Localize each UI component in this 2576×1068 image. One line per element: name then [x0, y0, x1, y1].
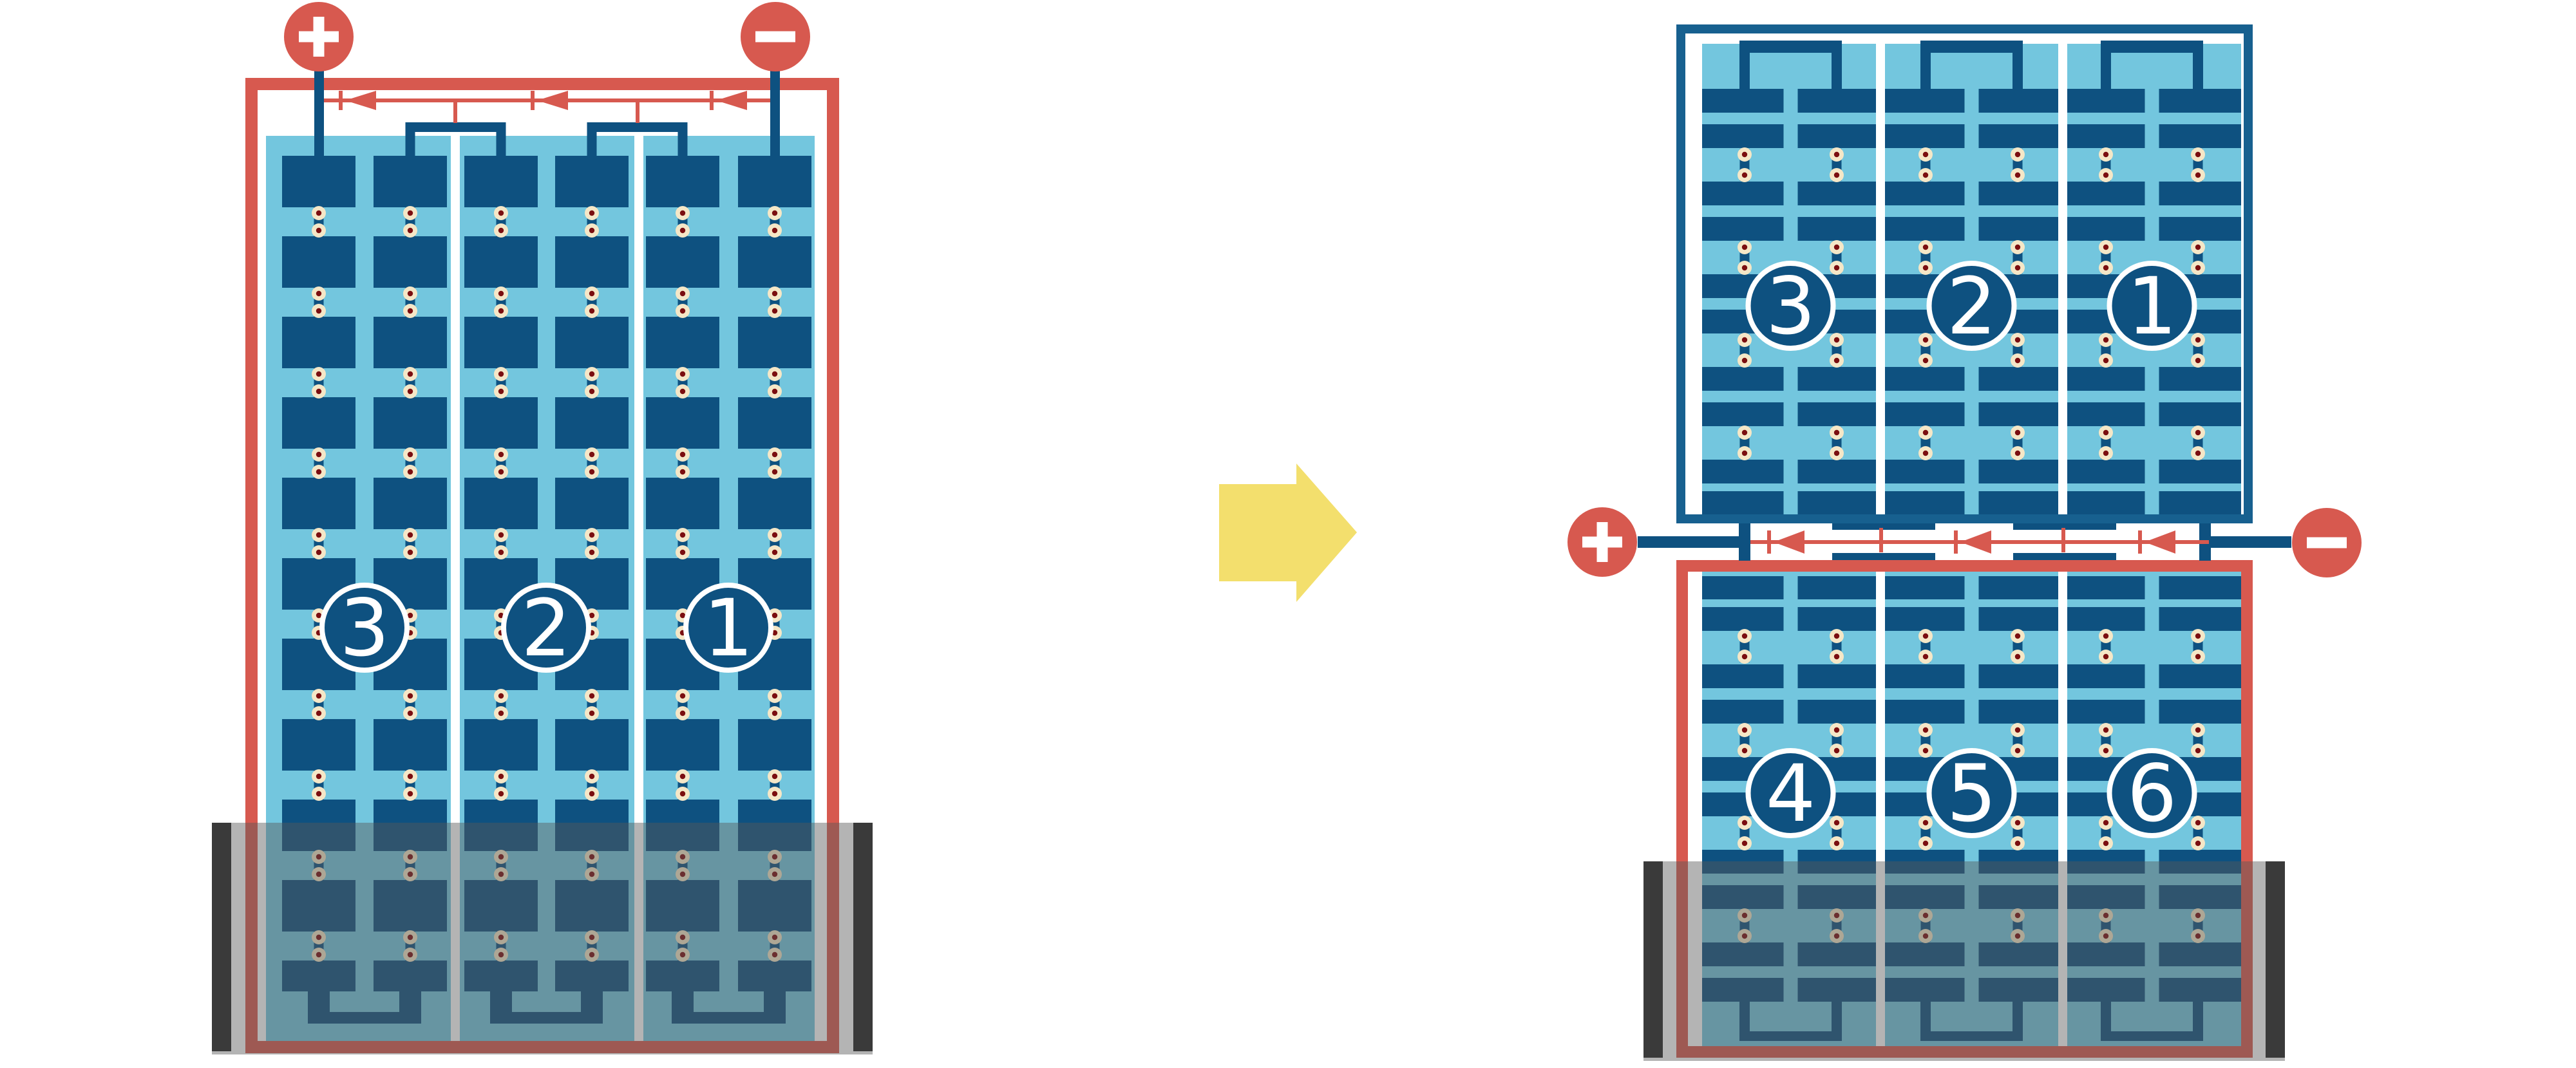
bead-core — [1742, 820, 1747, 825]
bead-core — [772, 291, 777, 296]
cell-number-label: 4 — [1766, 748, 1816, 839]
plate — [282, 478, 355, 529]
plate — [646, 478, 719, 529]
bead-core — [498, 389, 504, 394]
bead-core — [1923, 245, 1928, 250]
plate-bar — [1885, 491, 1965, 514]
bead-core — [772, 211, 777, 216]
plate-bar — [1798, 217, 1877, 241]
plus-glyph-vertical — [314, 17, 325, 57]
plate-bar — [1702, 664, 1784, 688]
plate-bar — [2159, 124, 2242, 148]
plate-bar — [2159, 217, 2242, 241]
plate-bar — [1979, 700, 2059, 724]
bead-core — [1923, 841, 1928, 846]
plate-bar — [1798, 664, 1877, 688]
plate — [282, 397, 355, 449]
bead-core — [772, 774, 777, 779]
bead-core — [2103, 358, 2108, 363]
bead-core — [2015, 245, 2020, 250]
bead-core — [589, 550, 594, 555]
bead-core — [2195, 748, 2201, 753]
plate-bar — [1885, 700, 1965, 724]
u-connector-leg — [1920, 53, 1931, 89]
bead-core — [2103, 654, 2108, 659]
bead-core — [316, 791, 321, 796]
bead-core — [2015, 841, 2020, 846]
plate-bar — [1979, 664, 2059, 688]
bead-core — [1834, 152, 1839, 157]
bead-core — [408, 711, 413, 716]
bead-core — [1923, 748, 1928, 753]
bead-core — [1834, 358, 1839, 363]
bead-core — [589, 532, 594, 538]
plate-bar — [2067, 576, 2145, 599]
bead-core — [498, 693, 504, 698]
bead-core — [1742, 337, 1747, 342]
bead-core — [2015, 654, 2020, 659]
bead-core — [680, 550, 685, 555]
bead-core — [589, 211, 594, 216]
bead-core — [772, 550, 777, 555]
diode-bar — [339, 91, 343, 110]
current-tap — [2061, 528, 2065, 552]
plate — [374, 397, 447, 449]
current-tap — [1879, 528, 1883, 552]
plate-bar — [1702, 217, 1784, 241]
bead-core — [408, 791, 413, 796]
plate-bar — [1885, 217, 1965, 241]
plate — [282, 156, 355, 207]
bead-core — [1834, 654, 1839, 659]
plate-bar — [1702, 124, 1784, 148]
negative-stem — [770, 64, 780, 157]
bead-core — [2103, 820, 2108, 825]
bead-core — [589, 469, 594, 474]
plate-bar — [2067, 182, 2145, 205]
plate-bar — [1979, 460, 2059, 483]
intercell-bridge — [406, 122, 506, 132]
plate-bar — [1798, 700, 1877, 724]
bead-core — [680, 774, 685, 779]
bead-core — [1742, 727, 1747, 733]
bead-core — [1834, 633, 1839, 639]
plate-bar — [2159, 607, 2242, 631]
plate-bar — [2159, 700, 2242, 724]
cell-number-label: 2 — [1947, 261, 1997, 352]
bead-core — [498, 791, 504, 796]
bead-core — [498, 469, 504, 474]
cell-number-label: 1 — [2127, 261, 2177, 352]
bead-core — [2103, 430, 2108, 435]
bead-core — [772, 452, 777, 457]
plate-bar — [2067, 491, 2145, 514]
plate-bar — [2159, 402, 2242, 426]
plate-bar — [1798, 89, 1877, 113]
plate-bar — [1702, 607, 1784, 631]
holder-bar — [2266, 861, 2285, 1058]
plate-bar — [1798, 491, 1877, 514]
bead-core — [1923, 633, 1928, 639]
plate — [374, 317, 447, 368]
u-connector-bar — [1739, 41, 1842, 53]
diode-bar — [1954, 530, 1958, 554]
holder-bar — [853, 823, 873, 1051]
negative-stem — [2211, 536, 2291, 548]
intercell-tab-lower — [2013, 553, 2116, 560]
plate-bar — [2067, 367, 2145, 391]
bead-core — [498, 532, 504, 538]
bead-core — [680, 228, 685, 233]
plate-bar — [2159, 491, 2242, 514]
bead-core — [408, 371, 413, 377]
diode-bar — [531, 91, 535, 110]
bead-core — [408, 693, 413, 698]
plate-bar — [1979, 89, 2059, 113]
bead-core — [316, 452, 321, 457]
plate-bar — [1702, 491, 1784, 514]
right-bottom-battery: 456 — [1643, 566, 2285, 1061]
plate — [646, 317, 719, 368]
bead-core — [1742, 654, 1747, 659]
intercell-bridge-leg — [497, 132, 506, 158]
plate — [464, 719, 538, 771]
bead-core — [2195, 265, 2201, 270]
intercell-tab-upper — [1832, 523, 1935, 530]
bead-core — [680, 711, 685, 716]
bead-core — [498, 211, 504, 216]
plus-glyph-vertical — [1597, 522, 1608, 562]
bead-core — [2015, 727, 2020, 733]
bead-core — [2015, 451, 2020, 456]
bead-core — [772, 228, 777, 233]
bead-core — [1834, 173, 1839, 178]
plate — [555, 236, 629, 288]
u-connector-bar — [1920, 41, 2023, 53]
bead-core — [2195, 173, 2201, 178]
bead-core — [316, 774, 321, 779]
plate — [555, 478, 629, 529]
plate-bar — [1885, 89, 1965, 113]
bead-core — [680, 389, 685, 394]
bead-core — [1742, 358, 1747, 363]
plate-bar — [1979, 607, 2059, 631]
plate — [282, 719, 355, 771]
plate-bar — [1979, 217, 2059, 241]
diode-bar — [2138, 530, 2142, 554]
plate-bar — [1979, 124, 2059, 148]
bead-core — [1742, 748, 1747, 753]
bead-core — [1923, 451, 1928, 456]
intercell-bridge-leg — [678, 132, 688, 158]
plate-bar — [1885, 367, 1965, 391]
bead-core — [1923, 337, 1928, 342]
plate — [282, 317, 355, 368]
plate-bar — [1702, 402, 1784, 426]
bead-core — [1742, 841, 1747, 846]
bead-core — [2015, 358, 2020, 363]
diode-arrow-left — [345, 91, 376, 110]
bead-core — [408, 532, 413, 538]
bead-core — [498, 291, 504, 296]
plate-bar — [1702, 576, 1784, 599]
bead-core — [408, 774, 413, 779]
minus-glyph — [2307, 538, 2347, 548]
plate-bar — [2159, 182, 2242, 205]
u-connector-leg — [2012, 53, 2023, 89]
positive-stem — [314, 64, 324, 157]
plate — [738, 236, 811, 288]
bead-core — [1834, 820, 1839, 825]
plate-bar — [1979, 367, 2059, 391]
liquid-level-overlay — [212, 823, 873, 1054]
bead-core — [1834, 430, 1839, 435]
plate-bar — [2067, 700, 2145, 724]
bead-core — [2015, 173, 2020, 178]
cell-number-label: 6 — [2127, 748, 2177, 839]
battery-diagram: 321 321 456 — [0, 0, 2576, 1068]
current-tap — [453, 102, 457, 123]
bead-core — [2195, 245, 2201, 250]
plate-bar — [2159, 367, 2242, 391]
bead-core — [589, 693, 594, 698]
bead-core — [2103, 337, 2108, 342]
bead-core — [2015, 265, 2020, 270]
bead-core — [772, 711, 777, 716]
bead-core — [408, 389, 413, 394]
bead-core — [1742, 265, 1747, 270]
cell-number-label: 1 — [703, 583, 753, 674]
plate-bar — [2159, 576, 2242, 599]
bead-core — [1834, 841, 1839, 846]
plate-bar — [1702, 367, 1784, 391]
bead-core — [408, 469, 413, 474]
bead-core — [680, 693, 685, 698]
bead-core — [1742, 451, 1747, 456]
bead-core — [1923, 820, 1928, 825]
transform-arrow — [1219, 464, 1357, 602]
cell-number-label: 5 — [1947, 748, 1997, 839]
plate-bar — [1979, 182, 2059, 205]
plate — [282, 236, 355, 288]
bead-core — [772, 791, 777, 796]
bead-core — [2195, 841, 2201, 846]
bead-core — [589, 711, 594, 716]
plate-bar — [1885, 664, 1965, 688]
bead-core — [2195, 820, 2201, 825]
diode-arrow-left — [716, 91, 747, 110]
u-connector-leg — [1832, 53, 1842, 89]
plate-bar — [2067, 89, 2145, 113]
minus-glyph — [755, 32, 795, 42]
plate-bar — [1798, 367, 1877, 391]
plate-bar — [2067, 607, 2145, 631]
bead-core — [2103, 727, 2108, 733]
bead-core — [1834, 451, 1839, 456]
bead-core — [1923, 654, 1928, 659]
current-tap — [636, 102, 639, 123]
bead-core — [1834, 245, 1839, 250]
plate-bar — [1885, 182, 1965, 205]
cell-number-label: 3 — [339, 583, 390, 674]
bead-core — [2103, 265, 2108, 270]
plate — [374, 156, 447, 207]
bead-core — [498, 228, 504, 233]
bead-core — [2195, 727, 2201, 733]
bead-core — [2015, 337, 2020, 342]
plate — [464, 156, 538, 207]
plate-bar — [1885, 576, 1965, 599]
bead-core — [680, 371, 685, 377]
bead-core — [1742, 245, 1747, 250]
cell-number-label: 2 — [521, 583, 571, 674]
plate-bar — [1702, 460, 1784, 483]
bead-core — [408, 211, 413, 216]
diode-arrow-left — [2145, 530, 2175, 554]
bead-core — [2103, 152, 2108, 157]
bead-core — [2015, 633, 2020, 639]
plate-bar — [1798, 576, 1877, 599]
intercell-bridge-leg — [587, 132, 597, 158]
plate — [555, 397, 629, 449]
bead-core — [316, 469, 321, 474]
plate-bar — [2067, 402, 2145, 426]
bead-core — [408, 291, 413, 296]
bead-core — [1923, 358, 1928, 363]
bead-core — [2015, 820, 2020, 825]
bead-core — [498, 711, 504, 716]
cell-separator — [2058, 44, 2067, 514]
bead-core — [589, 389, 594, 394]
bead-core — [772, 389, 777, 394]
plate-bar — [1885, 460, 1965, 483]
bead-core — [2015, 430, 2020, 435]
u-connector-leg — [2101, 53, 2111, 89]
plate — [646, 236, 719, 288]
right-arrow-icon — [1219, 464, 1357, 602]
plate — [374, 719, 447, 771]
bead-core — [408, 308, 413, 314]
left-battery: 321 — [212, 2, 873, 1054]
bead-core — [2015, 748, 2020, 753]
u-connector-bar — [2101, 41, 2203, 53]
bead-core — [408, 452, 413, 457]
plate-bar — [1798, 607, 1877, 631]
plate — [374, 478, 447, 529]
plate — [374, 236, 447, 288]
plate — [646, 397, 719, 449]
bead-core — [1742, 633, 1747, 639]
plate-bar — [1979, 402, 2059, 426]
bead-core — [772, 308, 777, 314]
bead-core — [2015, 152, 2020, 157]
bead-core — [408, 228, 413, 233]
plate — [738, 719, 811, 771]
plate — [738, 156, 811, 207]
bead-core — [772, 613, 777, 618]
plate-bar — [1979, 576, 2059, 599]
plate-bar — [1885, 607, 1965, 631]
bead-core — [772, 469, 777, 474]
bead-core — [2103, 633, 2108, 639]
plate — [464, 478, 538, 529]
plate-bar — [1702, 89, 1784, 113]
liquid-level-overlay — [1643, 861, 2285, 1061]
bead-core — [316, 693, 321, 698]
diode-bar — [1767, 530, 1771, 554]
bead-core — [680, 308, 685, 314]
bead-core — [589, 228, 594, 233]
bead-core — [589, 291, 594, 296]
bead-core — [2103, 748, 2108, 753]
bead-core — [498, 550, 504, 555]
plate — [464, 397, 538, 449]
plate-bar — [1798, 182, 1877, 205]
cell-separator — [1876, 44, 1885, 514]
plate — [555, 317, 629, 368]
bead-core — [589, 452, 594, 457]
plate-bar — [1979, 491, 2059, 514]
diode-bar — [710, 91, 714, 110]
intercell-bridge — [587, 122, 688, 132]
bead-core — [680, 791, 685, 796]
bead-core — [772, 693, 777, 698]
diode-arrow-left — [1960, 530, 1991, 554]
bead-core — [316, 211, 321, 216]
plate — [464, 236, 538, 288]
intercell-bridge-leg — [406, 132, 415, 158]
bead-core — [316, 389, 321, 394]
holder-bar — [212, 823, 231, 1051]
u-connector-leg — [2193, 53, 2203, 89]
bead-core — [316, 291, 321, 296]
bead-core — [498, 452, 504, 457]
bead-core — [2195, 337, 2201, 342]
plate-bar — [1885, 124, 1965, 148]
bead-core — [1834, 748, 1839, 753]
bead-core — [680, 211, 685, 216]
bead-core — [680, 452, 685, 457]
bead-core — [1923, 727, 1928, 733]
cell-number-label: 3 — [1766, 261, 1816, 352]
bead-core — [589, 371, 594, 377]
holder-bar — [1643, 861, 1663, 1058]
bead-core — [2103, 841, 2108, 846]
bead-core — [408, 550, 413, 555]
bead-core — [498, 308, 504, 314]
bead-core — [772, 532, 777, 538]
diode-arrow-left — [537, 91, 568, 110]
bead-core — [1923, 265, 1928, 270]
bead-core — [1742, 152, 1747, 157]
right-top-battery: 321 — [1681, 29, 2248, 519]
plate — [738, 397, 811, 449]
bead-core — [2195, 430, 2201, 435]
plate-bar — [2067, 124, 2145, 148]
bead-core — [1834, 337, 1839, 342]
plate-bar — [1798, 402, 1877, 426]
plate — [738, 478, 811, 529]
bead-core — [2103, 245, 2108, 250]
plate-bar — [2067, 664, 2145, 688]
plate-bar — [1798, 124, 1877, 148]
plate-bar — [2067, 217, 2145, 241]
bead-core — [2195, 654, 2201, 659]
bead-core — [1923, 173, 1928, 178]
bead-core — [589, 774, 594, 779]
bead-core — [316, 308, 321, 314]
bead-core — [316, 371, 321, 377]
